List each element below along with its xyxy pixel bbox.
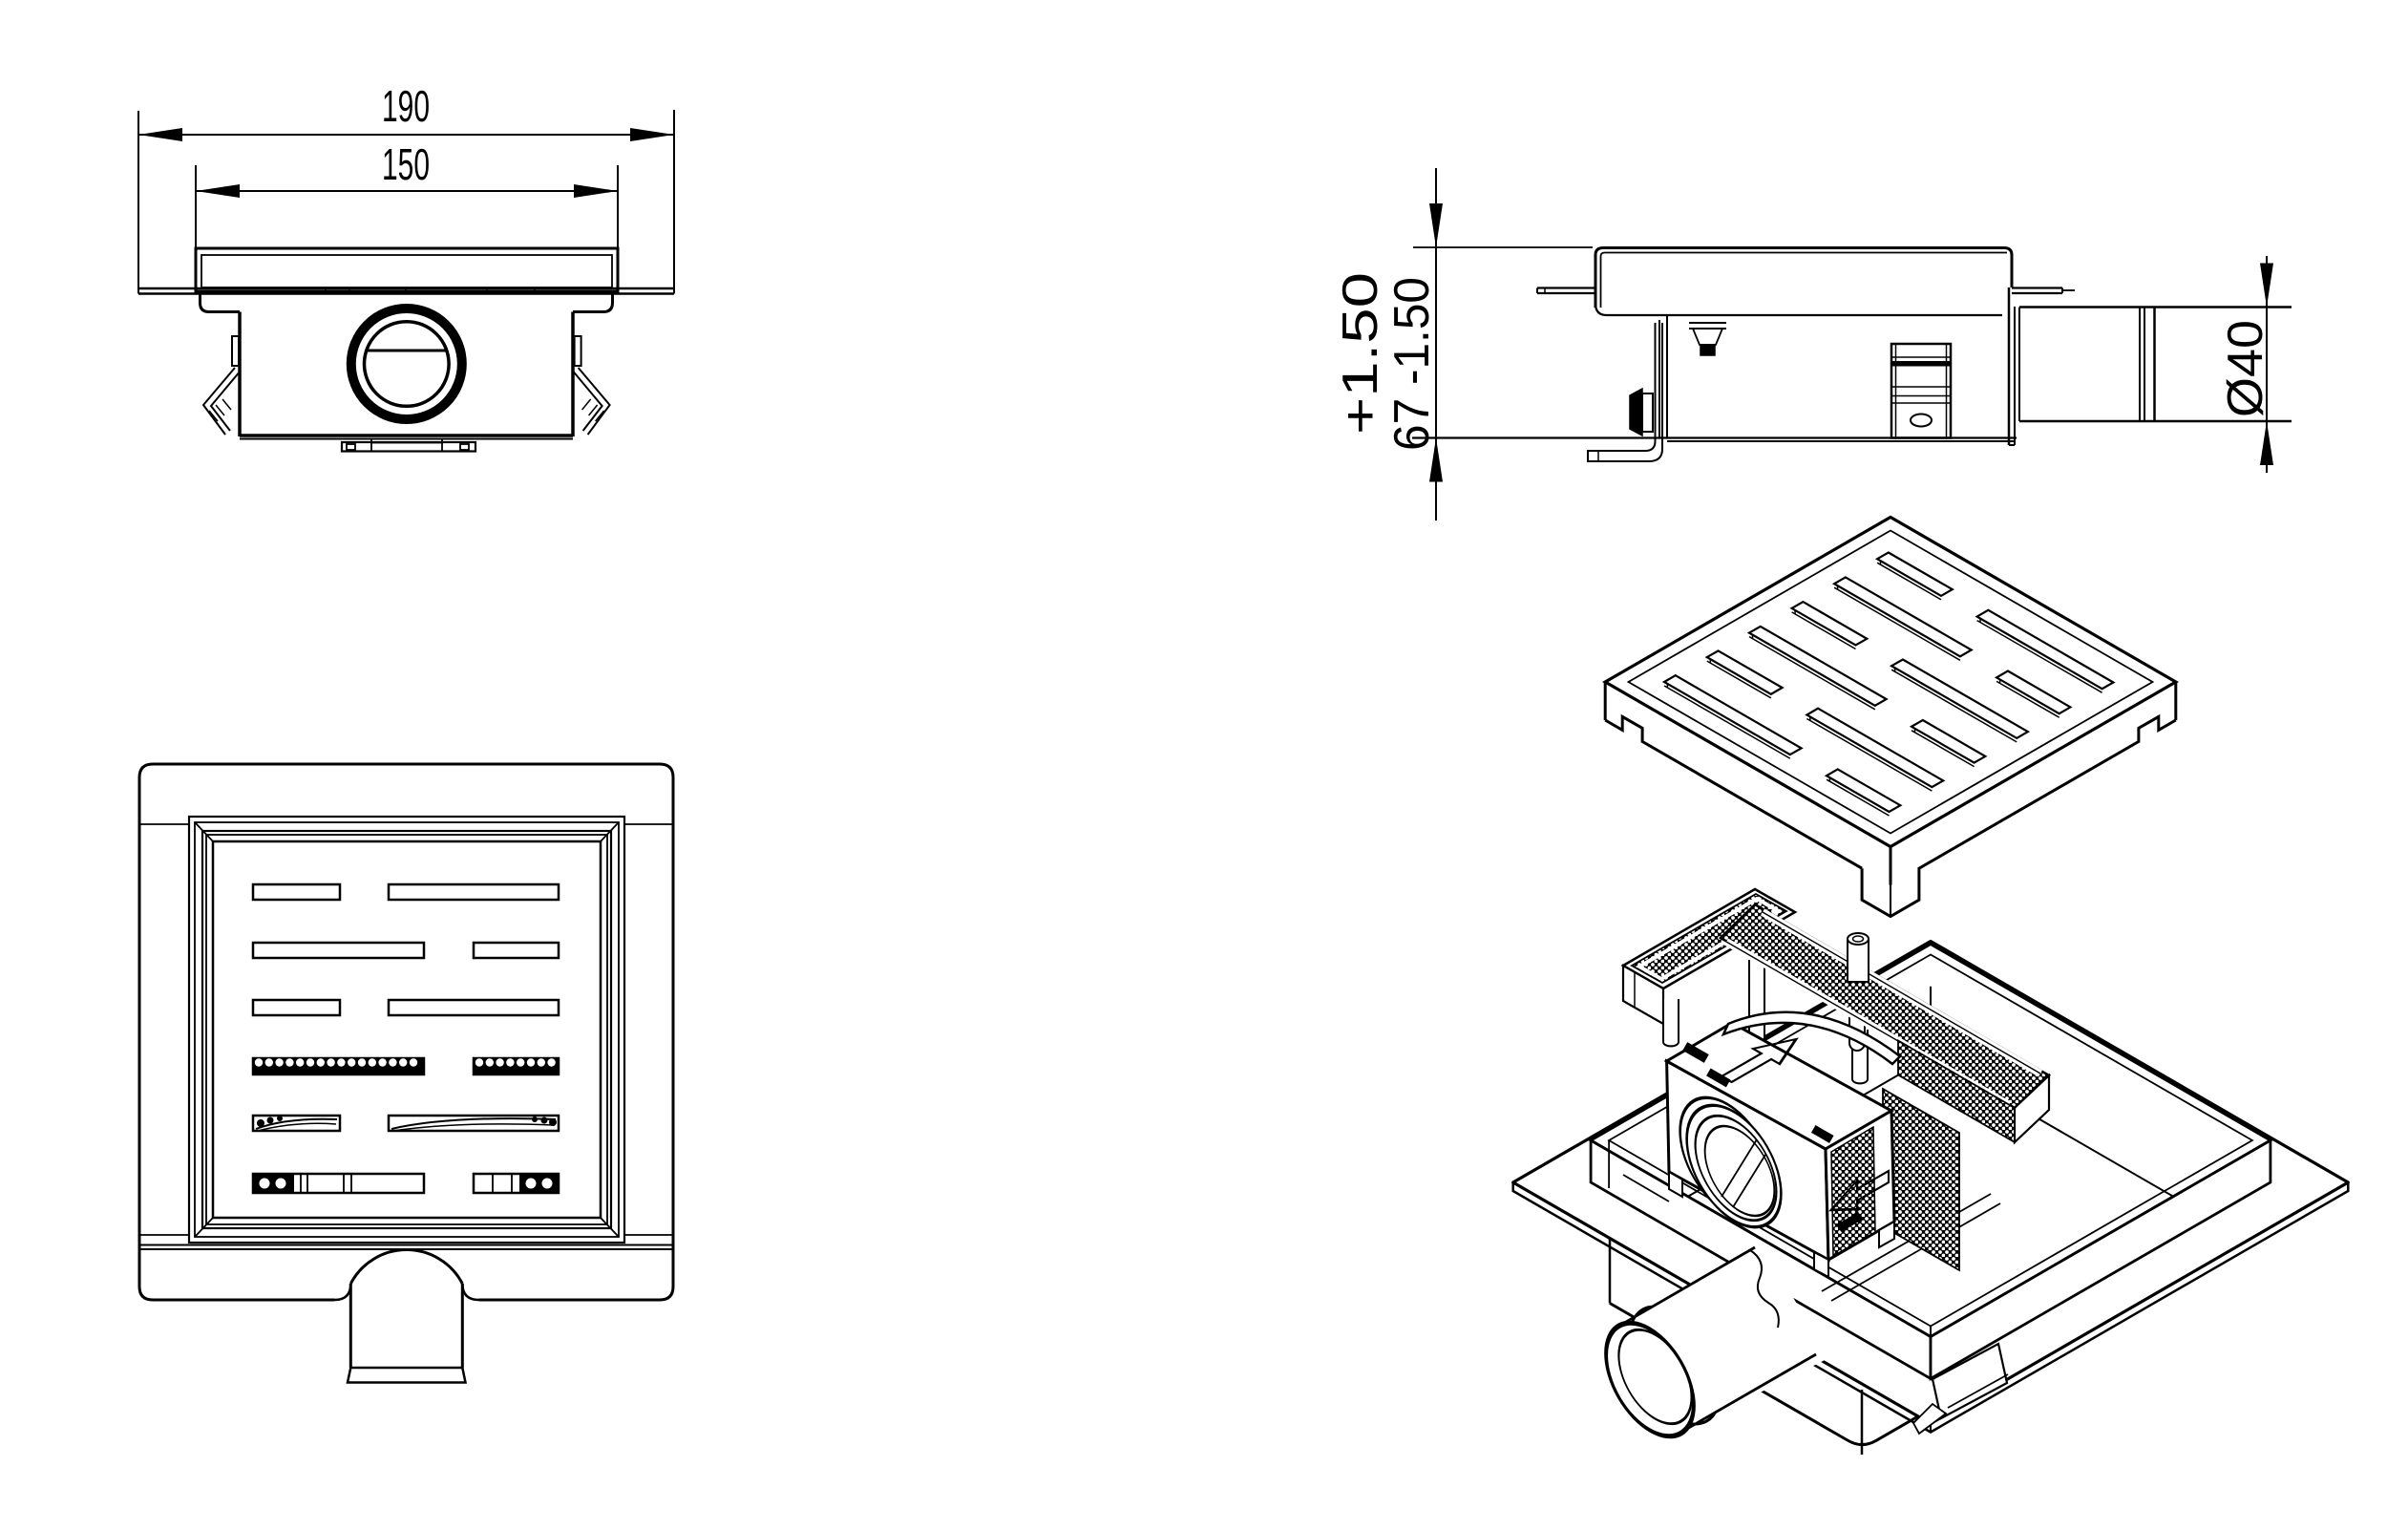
svg-text:150: 150 [382, 139, 430, 189]
svg-text:67 -1.50: 67 -1.50 [1384, 277, 1440, 451]
svg-text:Ø40: Ø40 [2218, 320, 2273, 417]
svg-text:190: 190 [382, 81, 430, 131]
svg-text:+1.50: +1.50 [1333, 272, 1388, 435]
